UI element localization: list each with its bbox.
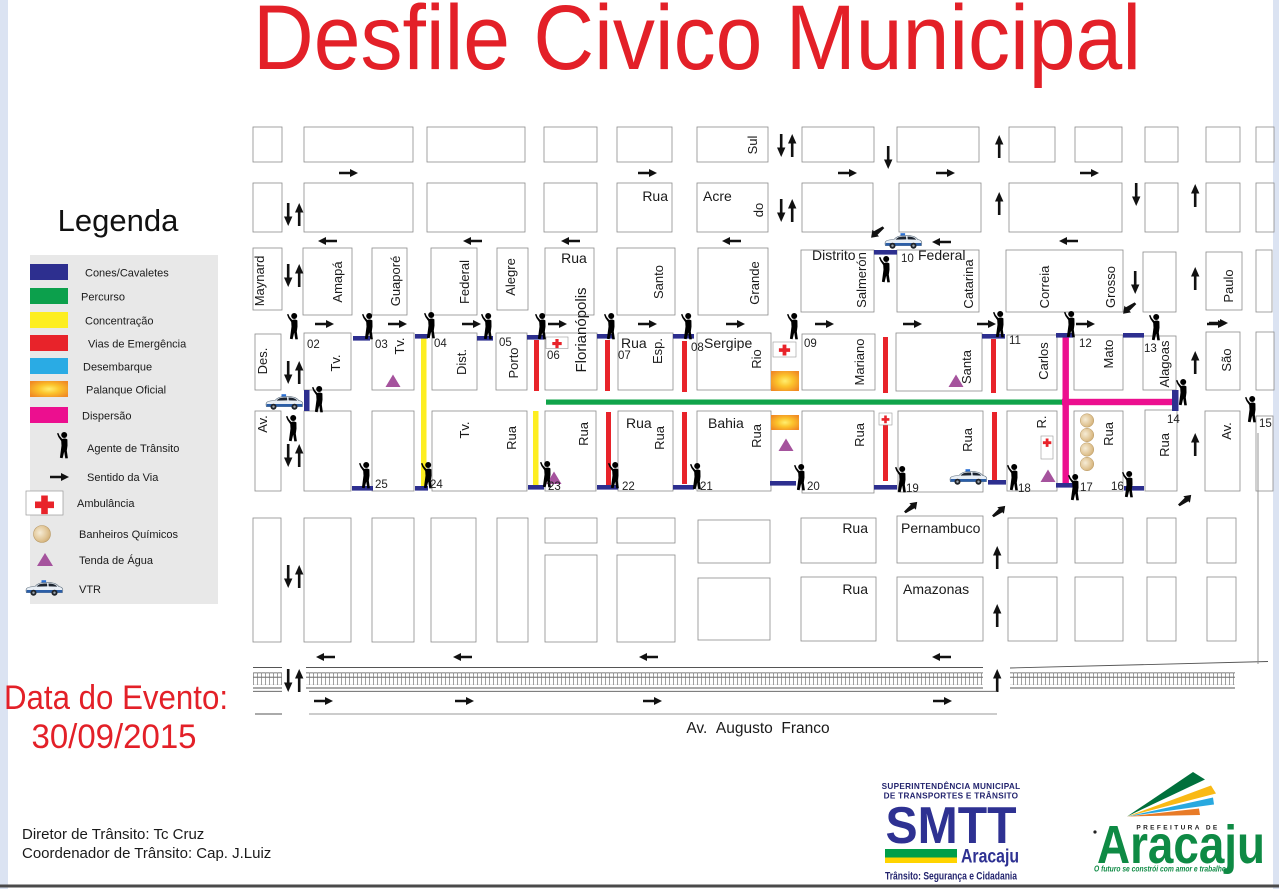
svg-text:Dist.: Dist. bbox=[454, 349, 469, 375]
svg-text:Rua: Rua bbox=[626, 415, 652, 431]
svg-text:Rua: Rua bbox=[749, 423, 764, 448]
svg-text:Tv.: Tv. bbox=[392, 337, 407, 354]
svg-text:Av. Augusto Franco: Av. Augusto Franco bbox=[686, 720, 829, 737]
svg-text:Santa: Santa bbox=[959, 349, 974, 384]
svg-text:Rua: Rua bbox=[621, 335, 647, 351]
svg-text:Desfile Civico Municipal: Desfile Civico Municipal bbox=[253, 0, 1141, 89]
svg-text:Alagoas: Alagoas bbox=[1157, 340, 1172, 387]
svg-text:Palanque Oficial: Palanque Oficial bbox=[86, 385, 166, 397]
svg-text:Salmerón: Salmerón bbox=[854, 252, 869, 308]
svg-text:18: 18 bbox=[1018, 483, 1031, 495]
svg-text:24: 24 bbox=[430, 479, 443, 491]
svg-text:Rua: Rua bbox=[652, 425, 667, 450]
svg-text:Coordenador de Trânsito: Cap.: Coordenador de Trânsito: Cap. J.Luiz bbox=[22, 845, 271, 862]
svg-text:Maynard: Maynard bbox=[252, 256, 267, 307]
svg-text:Grande: Grande bbox=[747, 261, 762, 304]
svg-text:Desembarque: Desembarque bbox=[83, 362, 152, 374]
svg-text:Florianópolis: Florianópolis bbox=[573, 287, 590, 372]
svg-text:Mato: Mato bbox=[1101, 340, 1116, 369]
svg-text:Legenda: Legenda bbox=[58, 203, 179, 238]
svg-text:VTR: VTR bbox=[79, 584, 101, 596]
svg-text:Rua: Rua bbox=[852, 422, 867, 447]
svg-text:14: 14 bbox=[1167, 414, 1180, 426]
svg-text:11: 11 bbox=[1009, 335, 1021, 347]
svg-text:08: 08 bbox=[691, 342, 704, 354]
svg-text:Av.: Av. bbox=[1219, 422, 1234, 440]
svg-text:Concentração: Concentração bbox=[85, 316, 154, 328]
svg-text:Rua: Rua bbox=[576, 421, 591, 446]
svg-text:16: 16 bbox=[1111, 481, 1124, 493]
svg-text:Data do Evento:: Data do Evento: bbox=[4, 679, 228, 717]
svg-text:13: 13 bbox=[1144, 343, 1157, 355]
svg-text:05: 05 bbox=[499, 337, 512, 349]
svg-text:02: 02 bbox=[307, 339, 320, 351]
svg-text:Santo: Santo bbox=[651, 265, 666, 299]
svg-text:Rua: Rua bbox=[842, 581, 868, 597]
svg-text:20: 20 bbox=[807, 481, 820, 493]
svg-text:22: 22 bbox=[622, 481, 635, 493]
svg-text:Aracaju: Aracaju bbox=[961, 847, 1019, 868]
svg-text:19: 19 bbox=[906, 483, 919, 495]
svg-text:Rua: Rua bbox=[842, 520, 868, 536]
svg-text:O futuro se constrói com amor: O futuro se constrói com amor e trabalho bbox=[1094, 864, 1226, 874]
svg-text:do: do bbox=[751, 203, 766, 217]
svg-text:Rua: Rua bbox=[561, 250, 587, 266]
svg-text:23: 23 bbox=[548, 481, 561, 493]
svg-text:12: 12 bbox=[1079, 338, 1092, 350]
svg-text:15: 15 bbox=[1259, 418, 1272, 430]
svg-text:Vias de Emergência: Vias de Emergência bbox=[88, 339, 187, 351]
svg-text:03: 03 bbox=[375, 339, 388, 351]
svg-text:Dispersão: Dispersão bbox=[82, 411, 132, 423]
svg-text:07: 07 bbox=[618, 350, 631, 362]
svg-text:Distrito: Distrito bbox=[812, 247, 856, 263]
svg-text:Rua: Rua bbox=[1101, 421, 1116, 446]
svg-text:Guaporé: Guaporé bbox=[388, 256, 403, 307]
svg-text:Trânsito: Segurança e Cidadani: Trânsito: Segurança e Cidadania bbox=[885, 871, 1018, 883]
svg-text:Diretor de Trânsito: Tc Cruz: Diretor de Trânsito: Tc Cruz bbox=[22, 826, 204, 843]
svg-text:Pernambuco: Pernambuco bbox=[901, 520, 981, 536]
svg-text:Rua: Rua bbox=[642, 188, 668, 204]
svg-text:Ambulância: Ambulância bbox=[77, 498, 135, 510]
svg-text:Federal: Federal bbox=[918, 247, 965, 263]
svg-text:Percurso: Percurso bbox=[81, 292, 125, 304]
svg-text:Esp.: Esp. bbox=[650, 338, 665, 364]
svg-text:SUPERINTENDÊNCIA MUNICIPAL: SUPERINTENDÊNCIA MUNICIPAL bbox=[882, 780, 1021, 791]
svg-text:Carlos: Carlos bbox=[1036, 342, 1051, 380]
svg-text:Tenda de Água: Tenda de Água bbox=[79, 554, 154, 567]
svg-text:09: 09 bbox=[804, 338, 817, 350]
svg-text:Alegre: Alegre bbox=[503, 258, 518, 296]
svg-text:Porto: Porto bbox=[506, 347, 521, 378]
svg-text:Bahia: Bahia bbox=[708, 415, 744, 431]
svg-text:Tv.: Tv. bbox=[457, 421, 472, 438]
svg-text:Grosso: Grosso bbox=[1103, 266, 1118, 308]
svg-text:Agente de Trânsito: Agente de Trânsito bbox=[87, 443, 179, 455]
svg-text:30/09/2015: 30/09/2015 bbox=[32, 718, 197, 756]
svg-text:Correia: Correia bbox=[1037, 265, 1052, 308]
svg-text:Rio: Rio bbox=[749, 349, 764, 369]
svg-text:Sul: Sul bbox=[745, 135, 760, 154]
svg-text:21: 21 bbox=[700, 481, 713, 493]
svg-text:Rua: Rua bbox=[1157, 432, 1172, 457]
svg-text:Rua: Rua bbox=[960, 427, 975, 452]
svg-text:Catarina: Catarina bbox=[961, 259, 976, 309]
svg-text:Mariano: Mariano bbox=[852, 339, 867, 386]
svg-text:Des.: Des. bbox=[255, 348, 270, 375]
svg-text:10: 10 bbox=[901, 253, 914, 265]
svg-text:Amazonas: Amazonas bbox=[903, 581, 969, 597]
svg-text:Amapá: Amapá bbox=[330, 261, 345, 303]
svg-text:Banheiros Químicos: Banheiros Químicos bbox=[79, 529, 179, 541]
svg-text:06: 06 bbox=[547, 350, 560, 362]
svg-text:25: 25 bbox=[375, 479, 388, 491]
svg-text:Sergipe: Sergipe bbox=[704, 335, 752, 351]
svg-text:Av.: Av. bbox=[255, 415, 270, 433]
svg-text:17: 17 bbox=[1080, 482, 1093, 494]
svg-text:R.: R. bbox=[1034, 416, 1049, 429]
svg-text:Sentido da Via: Sentido da Via bbox=[87, 472, 159, 484]
svg-text:Paulo: Paulo bbox=[1221, 269, 1236, 302]
svg-text:Federal: Federal bbox=[457, 260, 472, 304]
svg-text:Rua: Rua bbox=[504, 425, 519, 450]
svg-text:04: 04 bbox=[434, 338, 447, 350]
svg-text:Tv.: Tv. bbox=[328, 354, 343, 371]
svg-text:Acre: Acre bbox=[703, 188, 732, 204]
svg-text:Cones/Cavaletes: Cones/Cavaletes bbox=[85, 268, 169, 280]
svg-text:São: São bbox=[1219, 348, 1234, 371]
